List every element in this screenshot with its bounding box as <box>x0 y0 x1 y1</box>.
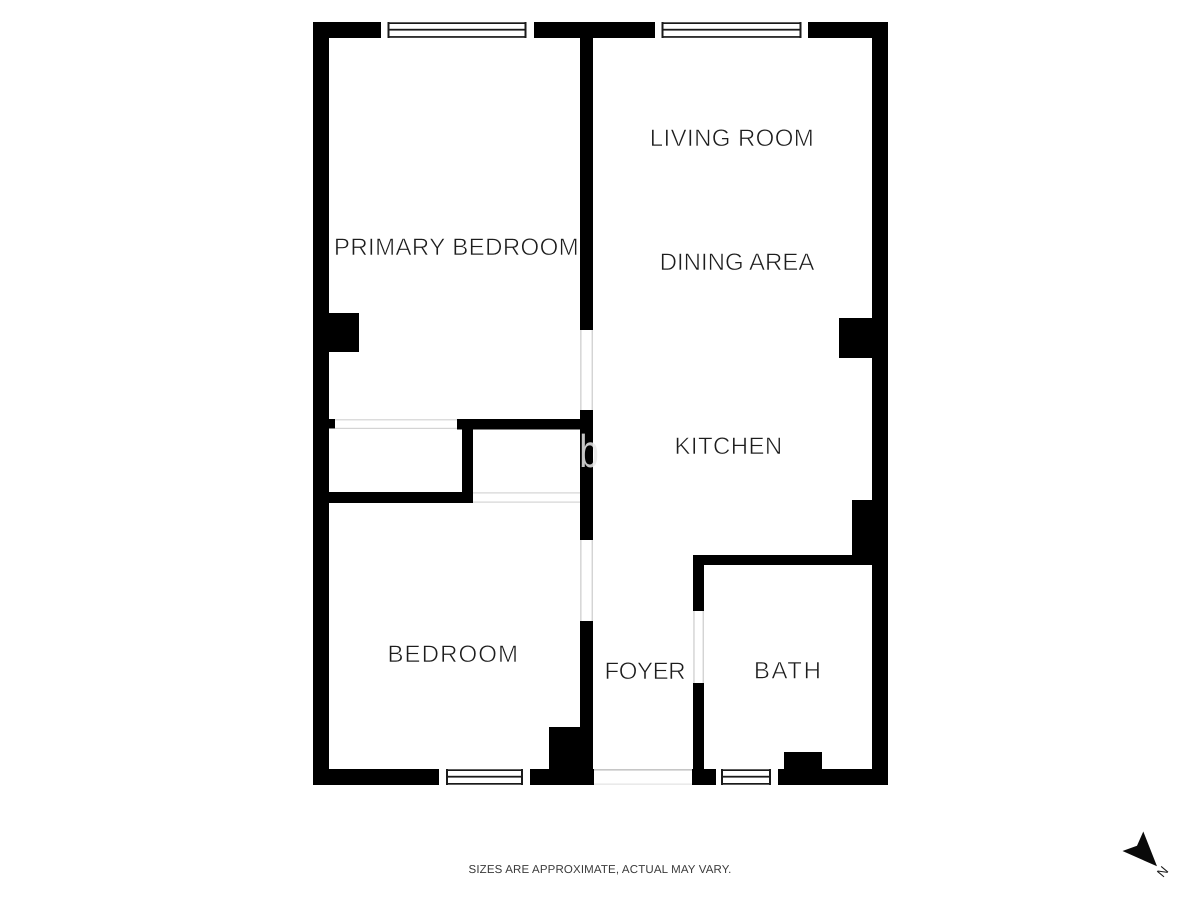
svg-text:SIZES ARE APPROXIMATE, ACTUAL: SIZES ARE APPROXIMATE, ACTUAL MAY VARY. <box>469 864 732 876</box>
svg-text:DINING AREA: DINING AREA <box>660 249 815 276</box>
svg-text:b: b <box>580 425 599 477</box>
svg-text:BATH: BATH <box>754 658 823 685</box>
svg-text:FOYER: FOYER <box>604 658 685 685</box>
svg-text:LIVING ROOM: LIVING ROOM <box>650 125 814 152</box>
svg-text:KITCHEN: KITCHEN <box>675 433 783 460</box>
svg-text:PRIMARY BEDROOM: PRIMARY BEDROOM <box>334 234 579 261</box>
svg-text:BEDROOM: BEDROOM <box>387 641 519 668</box>
